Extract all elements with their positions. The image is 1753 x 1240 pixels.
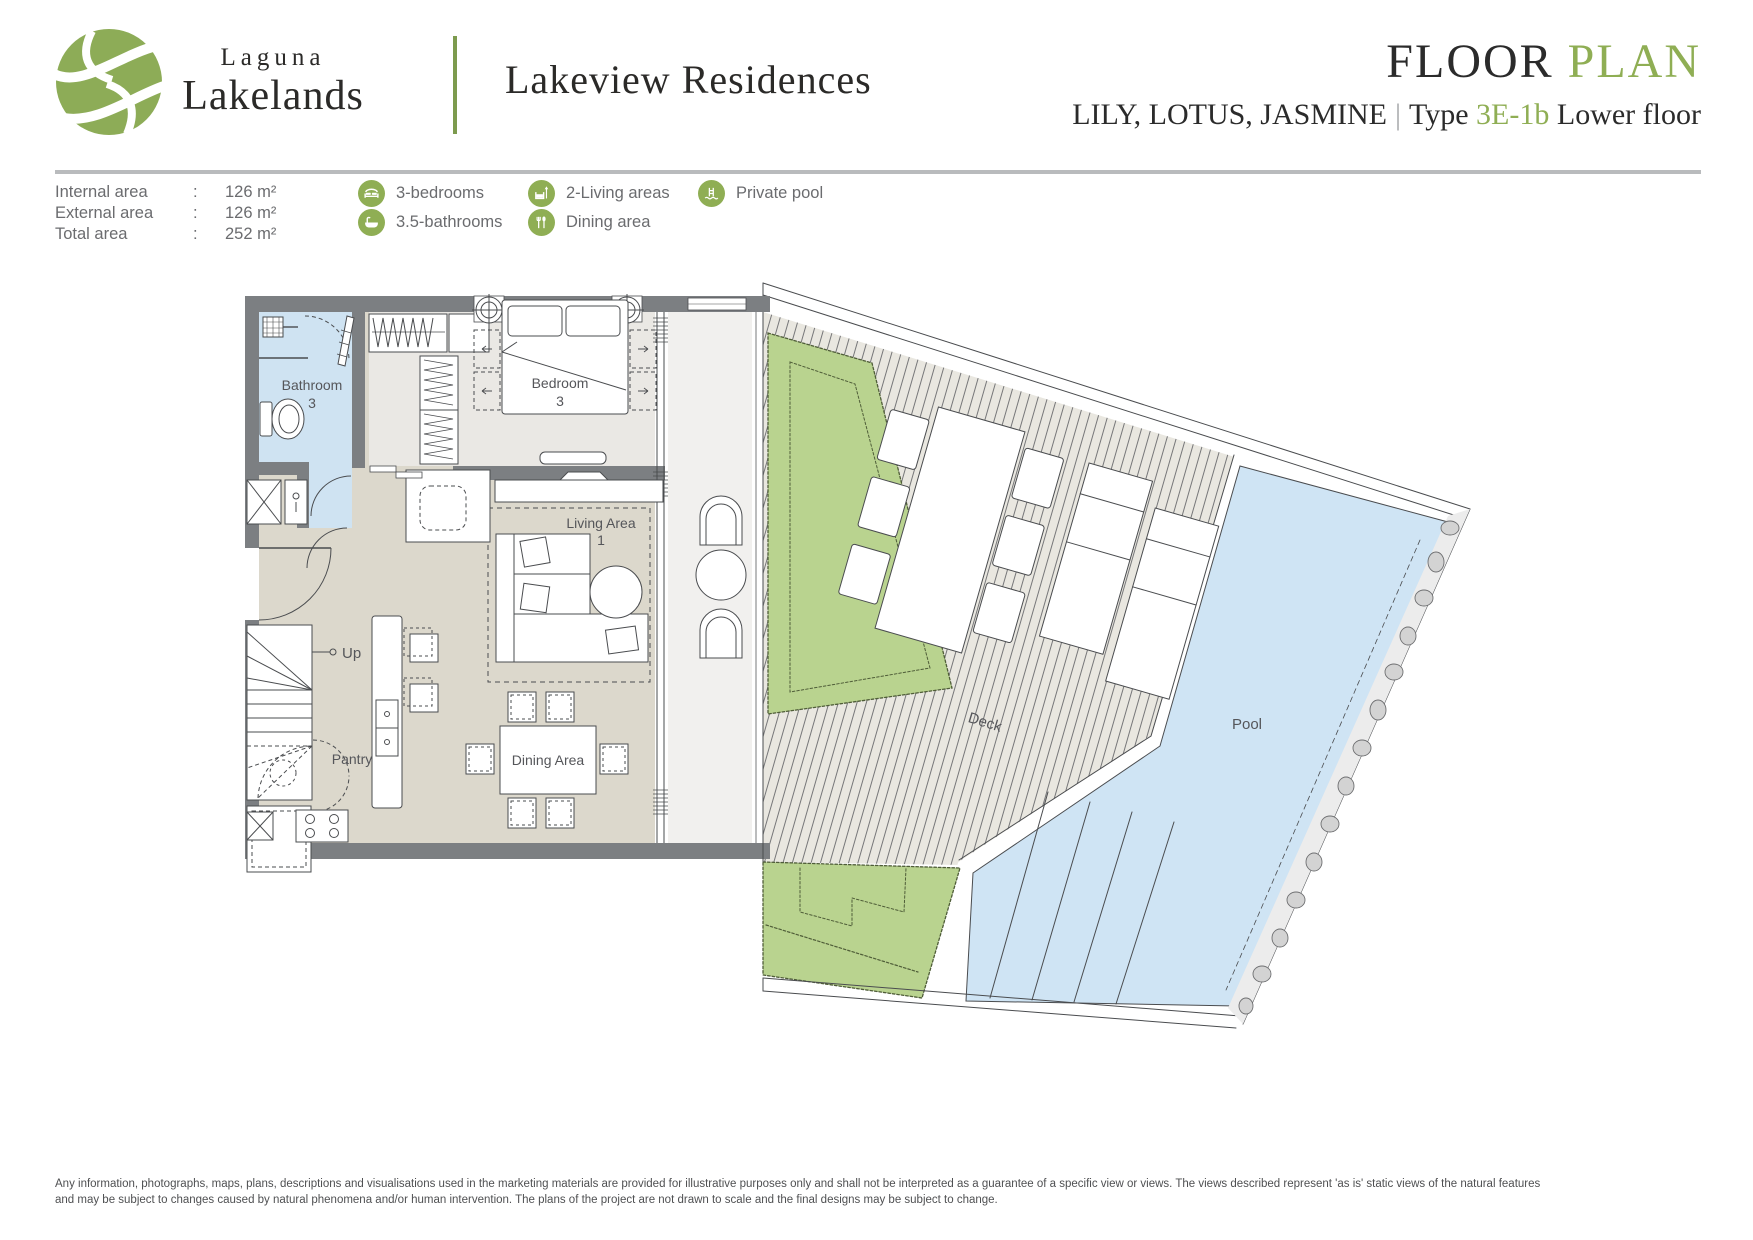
disclaimer-line-1: Any information, photographs, maps, plan… — [55, 1176, 1705, 1192]
terrace-seating — [696, 496, 746, 658]
disclaimer-line-2: and may be subject to changes caused by … — [55, 1192, 1705, 1208]
up-label: Up — [342, 645, 361, 662]
toilet — [260, 402, 272, 436]
floor-plan-drawing: Deck Pool — [0, 0, 1753, 1240]
disclaimer: Any information, photographs, maps, plan… — [55, 1176, 1705, 1208]
stove — [296, 810, 348, 842]
floor-plan-page: Laguna Lakelands Lakeview Residences FLO… — [0, 0, 1753, 1240]
living-area-label: Living Area — [566, 515, 635, 531]
living-area-number: 1 — [597, 532, 605, 548]
utility-nook — [247, 480, 307, 524]
pantry-label: Pantry — [332, 751, 372, 767]
garden-bottom — [763, 862, 960, 998]
bathroom-label: Bathroom — [282, 377, 343, 393]
pool-label: Pool — [1232, 716, 1262, 733]
dining-area-label: Dining Area — [512, 752, 585, 768]
bedroom-number: 3 — [556, 393, 564, 409]
outdoor-area: Deck Pool — [763, 283, 1470, 1028]
bathroom-number: 3 — [308, 395, 316, 411]
bedroom-label: Bedroom — [532, 375, 589, 391]
bed — [502, 300, 628, 414]
indoor-area: Bathroom 3 — [245, 294, 770, 872]
